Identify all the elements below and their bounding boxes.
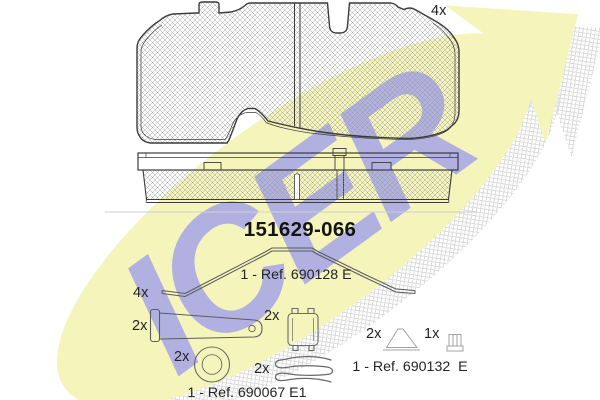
washer-qty-label: 2x bbox=[174, 349, 189, 365]
guide-pin-icon bbox=[151, 310, 263, 342]
spring-ref-label: 1 - Ref. 690128 E bbox=[195, 267, 397, 283]
washer-icon bbox=[195, 347, 230, 382]
pad-front-view bbox=[137, 2, 459, 143]
pin-qty-label: 2x bbox=[132, 318, 147, 334]
pad-qty-label: 4x bbox=[431, 3, 446, 19]
wedge-shim-icon bbox=[383, 329, 420, 350]
technical-drawing bbox=[0, 0, 600, 400]
part-number: 151629-066 bbox=[219, 218, 381, 242]
pad-side-view bbox=[138, 149, 458, 203]
wear-sensor-pin bbox=[333, 149, 346, 156]
friction-groove bbox=[295, 174, 300, 200]
cotter-qty-label: 2x bbox=[254, 361, 269, 377]
kit-690067-ref-label: 1 - Ref. 690067 E1 bbox=[146, 385, 348, 400]
cap-icon bbox=[447, 335, 463, 352]
rubber-boot-icon bbox=[288, 309, 318, 351]
boot-qty-label: 2x bbox=[264, 308, 279, 324]
parts-diagram-page: ICER bbox=[0, 0, 600, 400]
spring-qty-label: 4x bbox=[133, 285, 148, 301]
kit-690132-ref-label: 1 - Ref. 690132 E bbox=[309, 359, 511, 375]
shim-qty-label: 2x bbox=[366, 326, 381, 342]
cap-qty-label: 1x bbox=[424, 326, 439, 342]
